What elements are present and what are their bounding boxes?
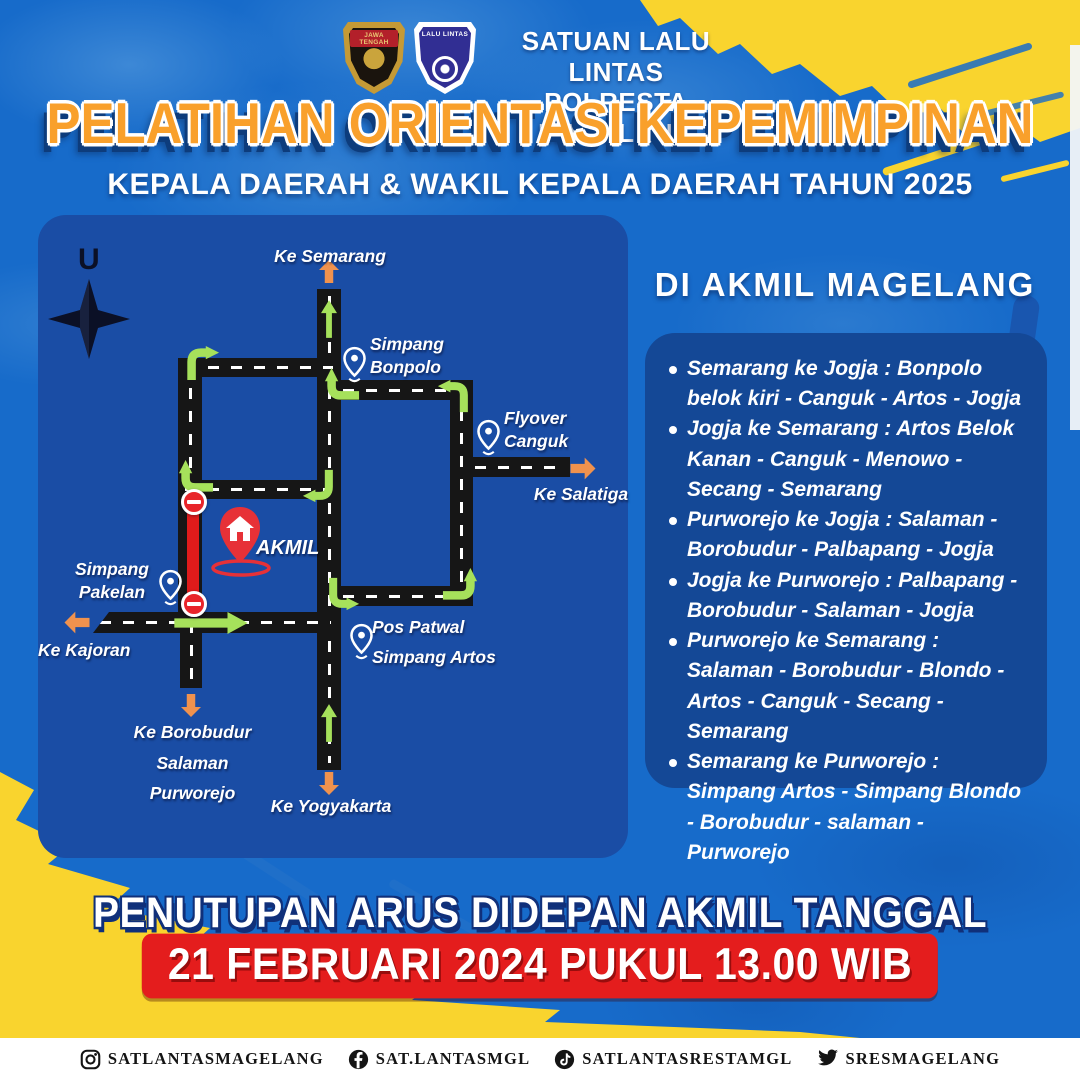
social-item-tiktok: SATLANTASRESTAMGL [554,1049,792,1070]
orange-down-arrow-borobudur [181,693,201,718]
social-footer: SATLANTASMAGELANG SAT.LANTASMGL SATLANTA… [0,1038,1080,1080]
winged-wheel-emblem [432,56,458,82]
green-turn-arrow-down-to-right [326,577,360,611]
road-map-panel: U [38,215,628,858]
green-turn-arrow-up-to-left [437,379,471,413]
closed-road-bar [187,511,199,595]
green-turn-arrow-up-to-right [184,345,220,381]
page-subtitle: KEPALA DAERAH & WAKIL KEPALA DAERAH TAHU… [0,168,1080,202]
orange-left-arrow-kajoran [65,612,90,634]
social-item-instagram: SATLANTASMAGELANG [80,1049,324,1070]
badge-banner-label: JAWA TENGAH [350,30,398,47]
closure-notice-text: PENUTUPAN ARUS DIDEPAN AKMIL TANGGAL [0,890,1080,938]
label-simpang-pakelan: Simpang Pakelan [66,558,158,604]
social-handle: SATLANTASRESTAMGL [582,1049,792,1069]
social-item-facebook: SAT.LANTASMGL [348,1049,531,1070]
twitter-icon [817,1049,839,1069]
lalu-lintas-badge: LALU LINTAS [414,22,476,94]
page-title: PELATIHAN ORIENTASI KEPEMIMPINAN [0,90,1080,156]
bonpolo-pin-icon [341,346,368,384]
instagram-icon [80,1049,101,1070]
route-item: Semarang ke Jogja : Bonpolo belok kiri -… [663,354,1027,414]
label-flyover-canguk: Flyover Canguk [504,407,568,453]
label-ke-yogyakarta: Ke Yogyakarta [266,795,396,818]
orange-right-arrow-salatiga [571,458,596,480]
location-heading: DI AKMIL MAGELANG [640,266,1050,304]
facebook-icon [348,1049,369,1070]
route-item: Semarang ke Purworejo : Simpang Artos - … [663,747,1027,868]
route-list: Semarang ke Jogja : Bonpolo belok kiri -… [663,354,1027,868]
no-entry-sign [181,591,207,617]
social-item-twitter: SRESMAGELANG [817,1049,1001,1069]
green-up-arrow [321,698,337,748]
route-item: Jogja ke Semarang : Artos Belok Kanan - … [663,414,1027,505]
pakelan-pin-icon [157,569,184,607]
green-up-arrow [321,295,337,343]
routes-panel: Semarang ke Jogja : Bonpolo belok kiri -… [645,333,1047,788]
no-entry-sign [181,489,207,515]
route-item: Purworejo ke Jogja : Salaman - Borobudur… [663,505,1027,565]
route-item: Jogja ke Purworejo : Palbapang - Borobud… [663,566,1027,626]
social-handle: SAT.LANTASMGL [376,1049,531,1069]
pos-patwal-pin-icon [348,623,375,661]
compass-rose-icon [48,279,130,359]
label-simpang-bonpolo: Simpang Bonpolo [370,333,444,379]
social-handle: SRESMAGELANG [846,1049,1001,1069]
social-handle: SATLANTASMAGELANG [108,1049,324,1069]
compass-north-label: U [78,243,100,277]
label-ke-borobudur: Ke Borobudur Salaman Purworejo [130,717,255,809]
label-ke-kajoran: Ke Kajoran [38,639,130,662]
jawa-tengah-police-badge: JAWA TENGAH [343,22,405,94]
route-item: Purworejo ke Semarang : Salaman - Borobu… [663,626,1027,747]
orange-down-arrow-yogyakarta [319,771,339,796]
tiktok-icon [554,1049,575,1070]
akmil-label: AKMIL [256,537,319,560]
org-line1: SATUAN LALU LINTAS [478,26,754,87]
poster-root: JAWA TENGAH LALU LINTAS SATUAN LALU LINT… [0,0,1080,1080]
green-right-arrow [170,612,252,634]
canguk-pin-icon [475,419,502,457]
badge-banner-label: LALU LINTAS [420,31,470,38]
green-turn-arrow-right-to-up [442,567,478,603]
road-segment-salatiga [468,457,570,477]
label-pos-patwal-simpang-artos: Pos Patwal Simpang Artos [372,613,496,673]
closure-date-banner: 21 FEBRUARI 2024 PUKUL 13.00 WIB [142,934,938,999]
label-ke-salatiga: Ke Salatiga [531,483,631,506]
green-turn-arrow-down-to-left [302,469,336,503]
label-ke-semarang: Ke Semarang [255,245,405,268]
